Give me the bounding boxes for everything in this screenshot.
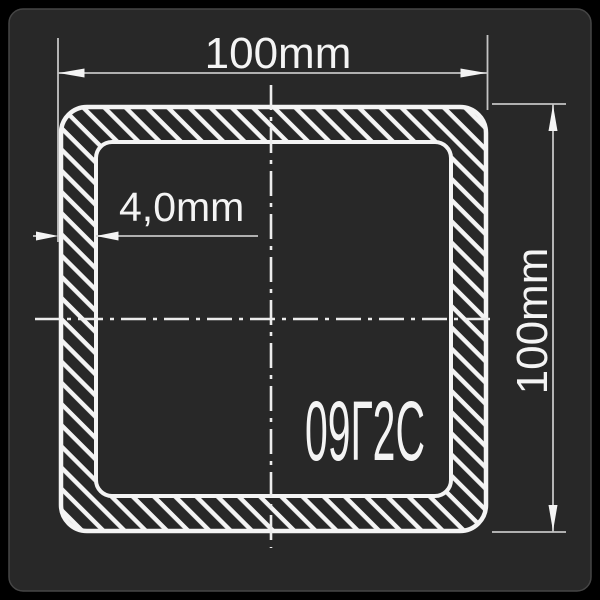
steel-grade-label: 09Г2С [305, 384, 425, 478]
width-dimension-label: 100mm [205, 29, 352, 78]
height-dimension-label: 100mm [508, 248, 557, 395]
thickness-dimension-label: 4,0mm [119, 184, 244, 230]
drawing-canvas: 100mm 100mm 4,0mm 09Г2С [0, 0, 600, 600]
